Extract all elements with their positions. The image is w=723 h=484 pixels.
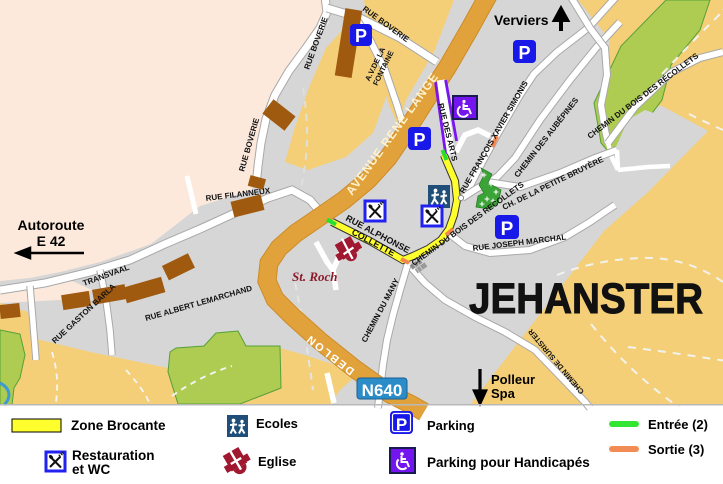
svg-text:et WC: et WC [72, 462, 110, 477]
svg-text:Parking pour Handicapés: Parking pour Handicapés [427, 455, 590, 470]
svg-text:P: P [413, 130, 425, 150]
svg-text:Restauration: Restauration [72, 448, 155, 463]
svg-text:JEHANSTER: JEHANSTER [469, 275, 703, 323]
svg-text:Eglise: Eglise [258, 454, 296, 469]
svg-text:N640: N640 [362, 381, 403, 400]
svg-text:P: P [518, 43, 530, 63]
svg-text:P: P [355, 26, 367, 46]
svg-text:Verviers: Verviers [494, 12, 549, 28]
svg-text:Polleur: Polleur [491, 372, 535, 387]
svg-text:Entrée (2): Entrée (2) [648, 417, 708, 432]
svg-text:Parking: Parking [427, 418, 475, 433]
svg-text:St. Roch: St. Roch [292, 269, 338, 284]
svg-text:P: P [396, 415, 407, 434]
svg-text:Spa: Spa [491, 386, 516, 401]
svg-text:Ecoles: Ecoles [256, 416, 298, 431]
svg-text:Zone Brocante: Zone Brocante [71, 418, 166, 433]
svg-text:E 42: E 42 [37, 233, 66, 249]
svg-text:Sortie (3): Sortie (3) [648, 442, 704, 457]
svg-text:Autoroute: Autoroute [18, 217, 85, 233]
svg-text:P: P [501, 219, 514, 240]
